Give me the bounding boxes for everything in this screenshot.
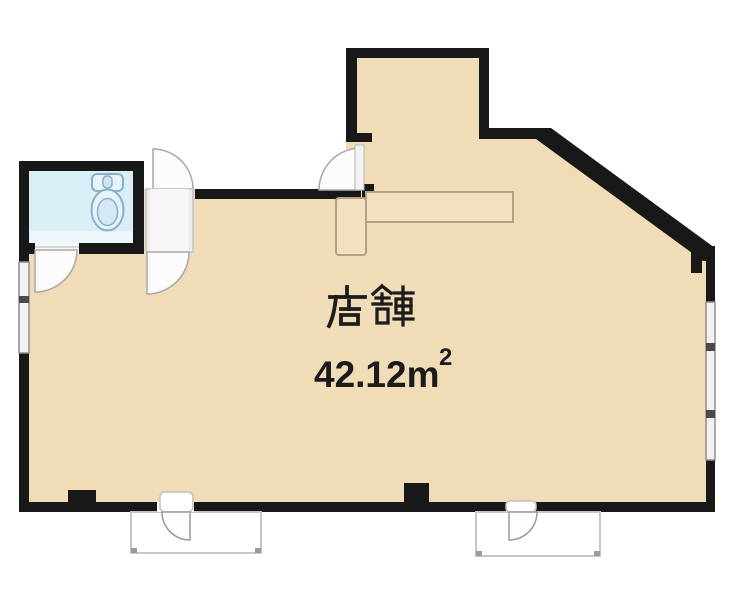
svg-text:2: 2	[439, 344, 452, 371]
svg-text:42.12m: 42.12m	[314, 354, 440, 395]
